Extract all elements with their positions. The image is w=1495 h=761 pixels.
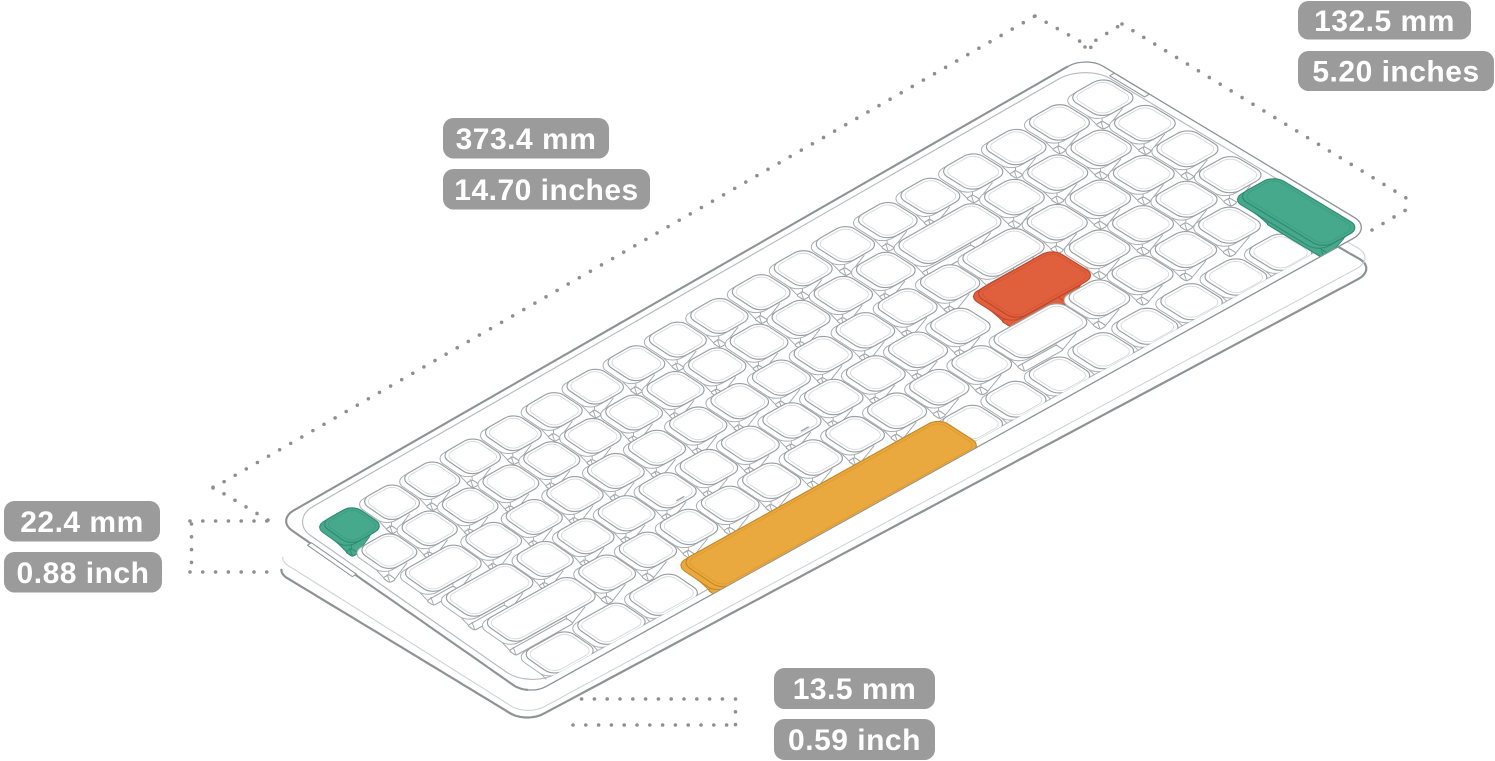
svg-text:0.59 inch: 0.59 inch: [788, 724, 921, 757]
svg-text:5.20 inches: 5.20 inches: [1312, 56, 1479, 89]
svg-text:373.4 mm: 373.4 mm: [456, 123, 597, 156]
svg-text:0.88 inch: 0.88 inch: [17, 557, 150, 590]
svg-text:22.4 mm: 22.4 mm: [20, 506, 144, 539]
svg-text:14.70 inches: 14.70 inches: [454, 174, 638, 207]
svg-text:13.5 mm: 13.5 mm: [793, 673, 917, 706]
svg-text:132.5 mm: 132.5 mm: [1314, 5, 1455, 38]
